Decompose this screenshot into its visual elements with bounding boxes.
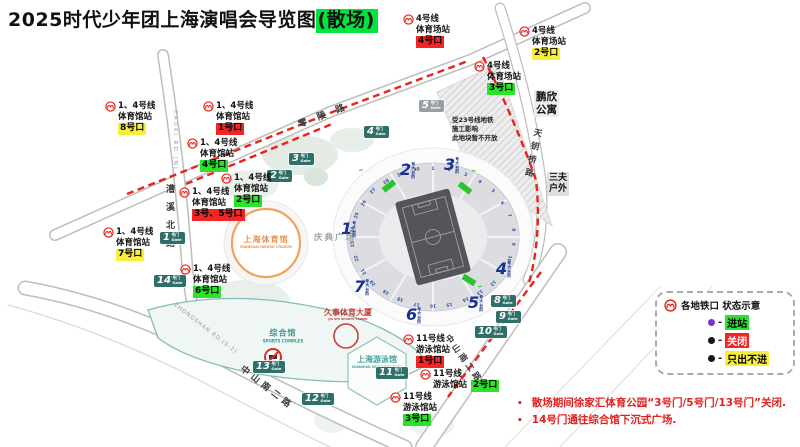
legend-dot [708, 319, 715, 326]
indoor-stadium [224, 201, 308, 285]
legend-items: - 进站 - 关闭 - 只出不进 [664, 315, 786, 366]
legend-row: - 只出不进 [708, 351, 786, 366]
legend-title: 各地铁口 状态示意 [681, 298, 760, 312]
legend-row: - 关闭 [708, 333, 786, 348]
note-row: • 散场期间徐家汇体育公园“3号门/5号门/13号门”关闭. [517, 395, 786, 412]
note-row: • 14号门通往综合馆下沉式广场. [517, 412, 786, 429]
bullet-icon: • [517, 397, 523, 411]
legend: 各地铁口 状态示意 - 进站 - 关闭 - 只出不进 [655, 291, 795, 375]
stage: 1234567891011121314151617181920212223242… [0, 0, 800, 447]
legend-dot [708, 337, 715, 344]
title-highlight: (散场) [316, 9, 377, 33]
legend-status-chip: 关闭 [725, 333, 749, 348]
metro-icon [664, 299, 677, 312]
legend-status-chip: 进站 [725, 315, 749, 330]
bullet-icon: • [517, 414, 523, 428]
legend-dot [708, 355, 715, 362]
notes: • 散场期间徐家汇体育公园“3号门/5号门/13号门”关闭. • 14号门通往综… [517, 395, 786, 429]
page-title: 2025时代少年团上海演唱会导览图(散场) [8, 5, 378, 32]
stadium [333, 148, 533, 326]
no-entry-icon [265, 349, 281, 365]
legend-status-chip: 只出不进 [725, 351, 769, 366]
legend-row: - 进站 [708, 315, 786, 330]
map-base [0, 0, 800, 447]
